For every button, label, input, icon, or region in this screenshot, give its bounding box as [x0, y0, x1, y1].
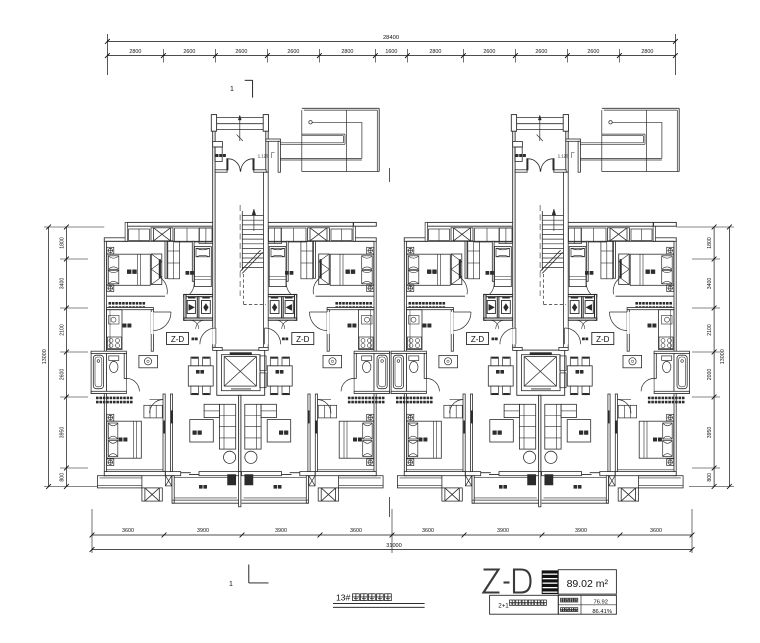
svg-text:2800: 2800 [641, 49, 653, 55]
svg-text:89.02 m²: 89.02 m² [567, 578, 609, 590]
svg-text:3600: 3600 [422, 528, 434, 534]
svg-text:2800: 2800 [341, 49, 353, 55]
svg-text:13000: 13000 [42, 349, 48, 364]
svg-text:2800: 2800 [129, 49, 141, 55]
svg-text:13#: 13# [336, 593, 350, 603]
svg-text:3900: 3900 [275, 528, 287, 534]
svg-text:28400: 28400 [383, 35, 399, 41]
svg-text:1: 1 [230, 86, 234, 93]
svg-text:2600: 2600 [535, 49, 547, 55]
svg-text:2600: 2600 [483, 49, 495, 55]
svg-text:3900: 3900 [575, 528, 587, 534]
svg-text:76.92: 76.92 [593, 599, 608, 605]
svg-text:1: 1 [229, 581, 233, 588]
svg-text:1.120: 1.120 [258, 154, 269, 159]
svg-text:Z-D: Z-D [296, 335, 310, 344]
svg-text:2800: 2800 [429, 49, 441, 55]
svg-text:3400: 3400 [707, 278, 713, 290]
svg-text:1600: 1600 [385, 49, 397, 55]
svg-text:3400: 3400 [60, 278, 66, 290]
svg-text:3600: 3600 [650, 528, 662, 534]
svg-text:3900: 3900 [497, 528, 509, 534]
svg-text:31000: 31000 [386, 543, 402, 549]
svg-text:Z-D: Z-D [171, 335, 185, 344]
svg-text:2100: 2100 [60, 324, 66, 336]
svg-text:3900: 3900 [197, 528, 209, 534]
svg-text:2600: 2600 [587, 49, 599, 55]
svg-text:86.41%: 86.41% [592, 609, 612, 615]
svg-text:1800: 1800 [707, 237, 713, 249]
svg-text:3950: 3950 [60, 427, 66, 439]
svg-text:800: 800 [59, 473, 65, 482]
svg-text:3600: 3600 [122, 528, 134, 534]
svg-text:13000: 13000 [720, 349, 726, 364]
svg-text:2100: 2100 [707, 324, 713, 336]
svg-text:2600: 2600 [60, 369, 66, 381]
svg-text:2+1: 2+1 [498, 602, 509, 609]
svg-text:2000: 2000 [707, 369, 713, 381]
svg-text:1800: 1800 [60, 237, 66, 249]
svg-text:3950: 3950 [707, 427, 713, 439]
svg-text:2600: 2600 [183, 49, 195, 55]
svg-text:2600: 2600 [235, 49, 247, 55]
svg-text:800: 800 [707, 473, 713, 482]
svg-text:3600: 3600 [350, 528, 362, 534]
svg-text:2600: 2600 [287, 49, 299, 55]
